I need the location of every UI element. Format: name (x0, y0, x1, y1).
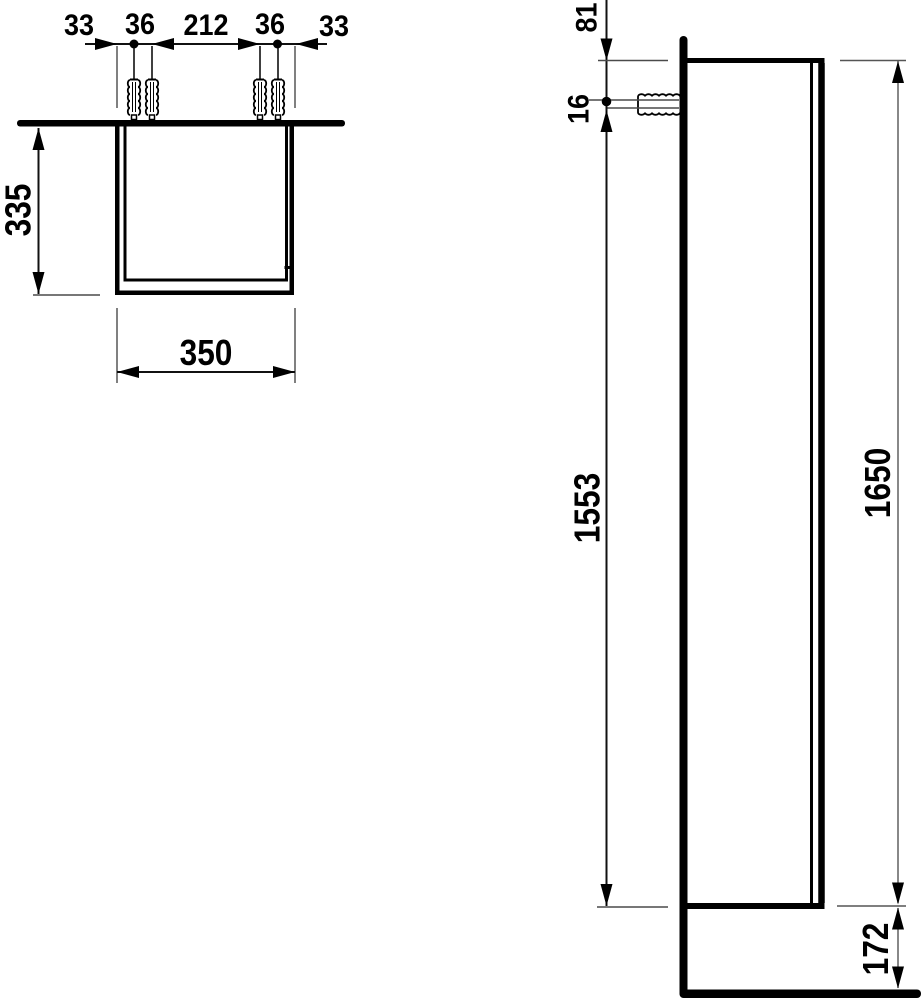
technical-drawing-canvas: 33 36 212 36 33 (0, 0, 923, 1000)
cabinet-outer-outline (117, 127, 292, 293)
top-view-plan: 33 36 212 36 33 (0, 8, 349, 383)
plug-ribbed-side (272, 80, 274, 115)
wall-plug-top-3 (254, 46, 266, 120)
plug-ribbed-side (282, 80, 284, 115)
right-height-dimensions: 1650 172 (837, 61, 906, 989)
arrowhead-down-icon (892, 883, 904, 905)
dim-label-350: 350 (180, 333, 233, 373)
dimension-point-dot (602, 97, 612, 107)
wall-plug-side (589, 94, 680, 115)
cabinet-dimension-drawing: 33 36 212 36 33 (0, 0, 923, 1000)
dim-label-212: 212 (183, 9, 228, 43)
floor-line (680, 990, 922, 999)
dim-label-36-right: 36 (255, 8, 285, 42)
plug-tip (150, 115, 155, 120)
wall-line-side-view (680, 36, 688, 997)
cabinet-inner-outline (125, 127, 287, 281)
plug-ribbed-side (138, 80, 140, 115)
plug-ribbed-side (156, 80, 158, 115)
arrowhead-left-icon (296, 38, 318, 50)
dim-label-1553: 1553 (568, 473, 608, 543)
dim-label-172: 172 (856, 923, 896, 976)
arrowhead-left-icon (117, 366, 139, 378)
cabinet-body-side (687, 61, 825, 907)
depth-dimension: 335 (0, 128, 100, 295)
side-view: 81 16 1553 1650 172 (562, 0, 921, 998)
dim-label-335: 335 (0, 184, 39, 237)
dim-label-33-right: 33 (319, 10, 349, 44)
left-height-dimension-chain: 81 16 1553 (562, 0, 668, 907)
arrowhead-up-icon (892, 61, 904, 83)
arrowhead-left-icon (152, 38, 174, 50)
plug-ribbed-side (128, 80, 130, 115)
arrowhead-up-icon (33, 128, 45, 150)
dim-label-33-left: 33 (64, 9, 94, 43)
wall-plug-top-2 (146, 46, 158, 120)
arrowhead-up-icon (601, 110, 613, 132)
plug-ribbed-side (264, 80, 266, 115)
dim-label-16: 16 (562, 94, 596, 124)
plug-ribbed-side (254, 80, 256, 115)
width-dimension: 350 (117, 308, 295, 383)
arrowhead-down-icon (601, 39, 613, 61)
plug-tip (132, 115, 137, 120)
arrowhead-right-icon (95, 38, 117, 50)
plug-ribbed-side (638, 94, 680, 96)
wall-line-top-view (17, 120, 345, 127)
plug-ribbed-side (146, 80, 148, 115)
arrowhead-down-icon (601, 884, 613, 906)
plug-ribbed-side (638, 113, 680, 115)
wall-plug-top-1 (128, 46, 140, 120)
arrowhead-down-icon (33, 272, 45, 294)
cabinet-body-plan (117, 127, 294, 293)
wall-plug-top-4 (272, 46, 284, 120)
arrowhead-right-icon (273, 366, 295, 378)
dim-label-1650: 1650 (858, 448, 898, 518)
plug-tip (276, 115, 281, 120)
plug-tip (258, 115, 263, 120)
dim-label-36-left: 36 (125, 8, 155, 42)
dim-label-81: 81 (570, 2, 604, 32)
fixing-chain-dimension: 33 36 212 36 33 (64, 8, 349, 108)
